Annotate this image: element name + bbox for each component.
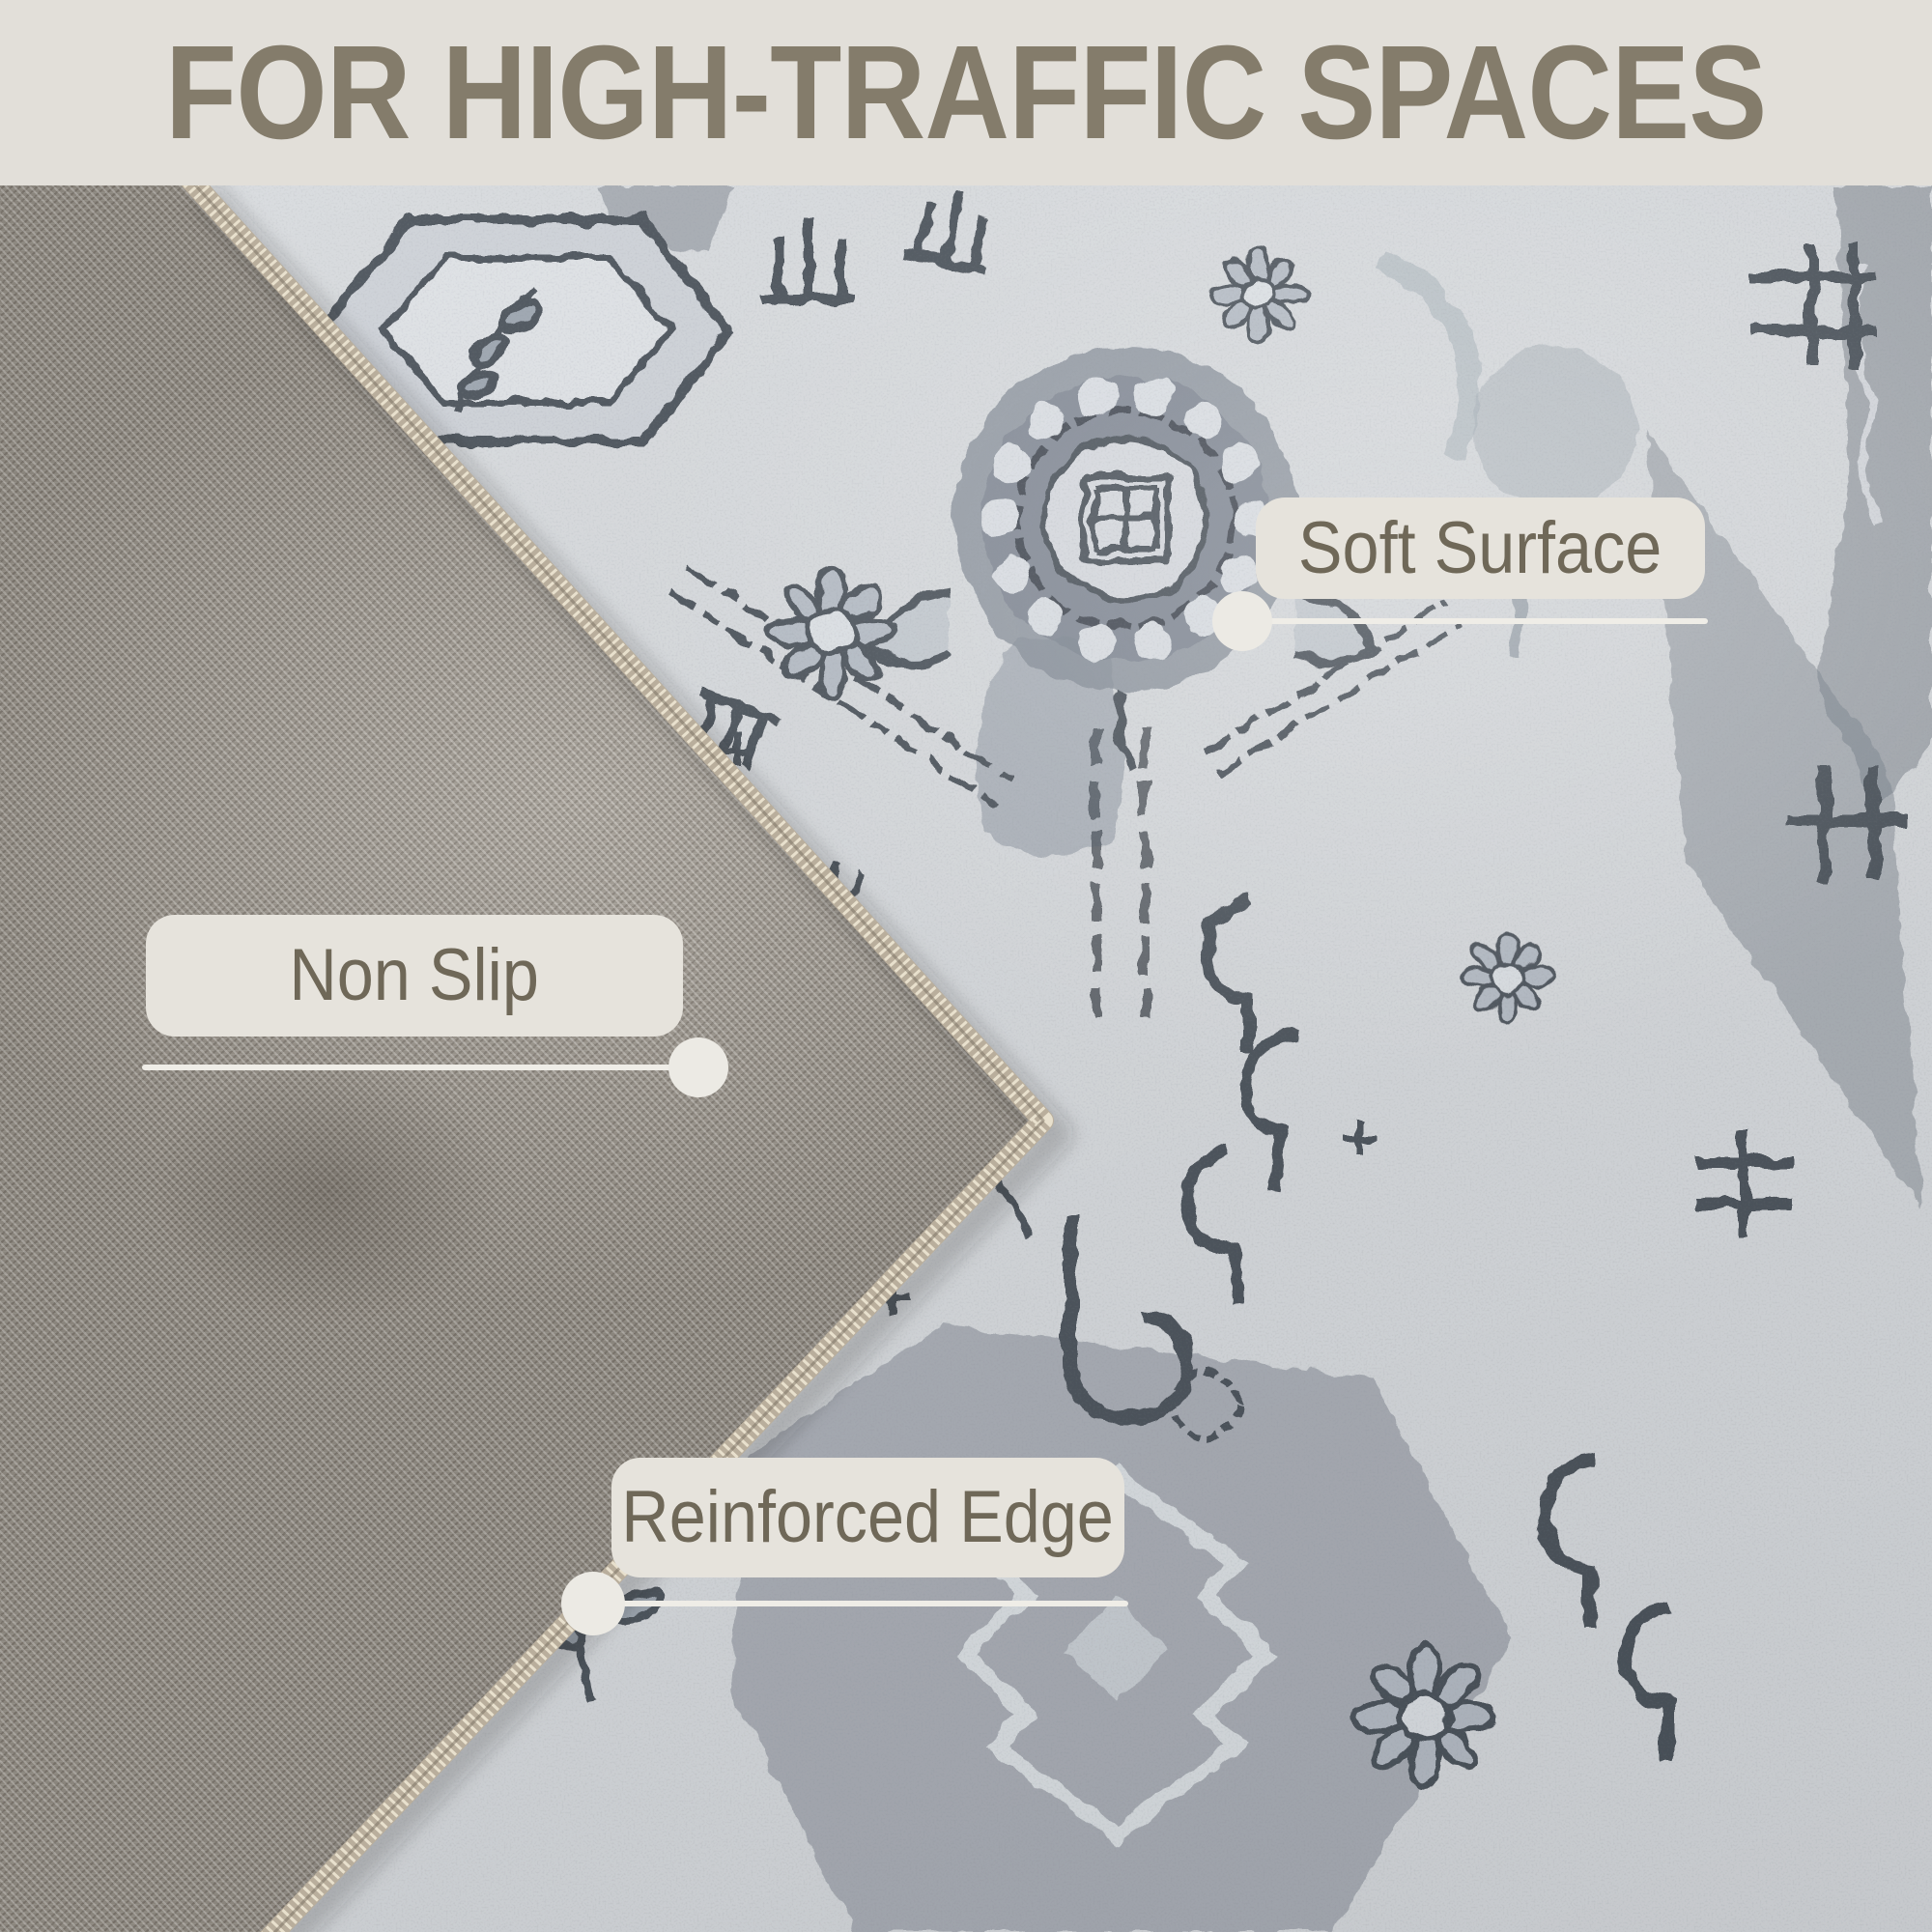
fold-shadow bbox=[205, 193, 1057, 1932]
callout-reinforced-edge-leader-line bbox=[593, 1601, 1128, 1606]
callout-reinforced-edge-leader-dot bbox=[561, 1572, 625, 1635]
serged-edge-thread bbox=[190, 185, 1043, 1932]
callout-non-slip-leader-line bbox=[142, 1065, 698, 1070]
callout-soft-surface-leader-line bbox=[1242, 618, 1708, 624]
callout-non-slip-label: Non Slip bbox=[290, 939, 540, 1012]
callout-non-slip-leader-dot bbox=[668, 1037, 728, 1097]
rug-seam-stitching bbox=[0, 185, 1932, 1932]
product-photo bbox=[0, 185, 1932, 1932]
serged-edge-line bbox=[190, 185, 1043, 1932]
callout-reinforced-edge-label: Reinforced Edge bbox=[622, 1481, 1115, 1554]
banner: FOR HIGH-TRAFFIC SPACES bbox=[0, 0, 1932, 185]
callout-reinforced-edge: Reinforced Edge bbox=[611, 1458, 1124, 1577]
callout-soft-surface-leader-dot bbox=[1212, 591, 1272, 651]
callout-non-slip: Non Slip bbox=[146, 915, 683, 1037]
product-infographic: FOR HIGH-TRAFFIC SPACES bbox=[0, 0, 1932, 1932]
banner-title: FOR HIGH-TRAFFIC SPACES bbox=[165, 26, 1766, 159]
callout-soft-surface: Soft Surface bbox=[1256, 497, 1705, 599]
serged-edge-base bbox=[190, 185, 1043, 1932]
callout-soft-surface-label: Soft Surface bbox=[1298, 512, 1662, 585]
